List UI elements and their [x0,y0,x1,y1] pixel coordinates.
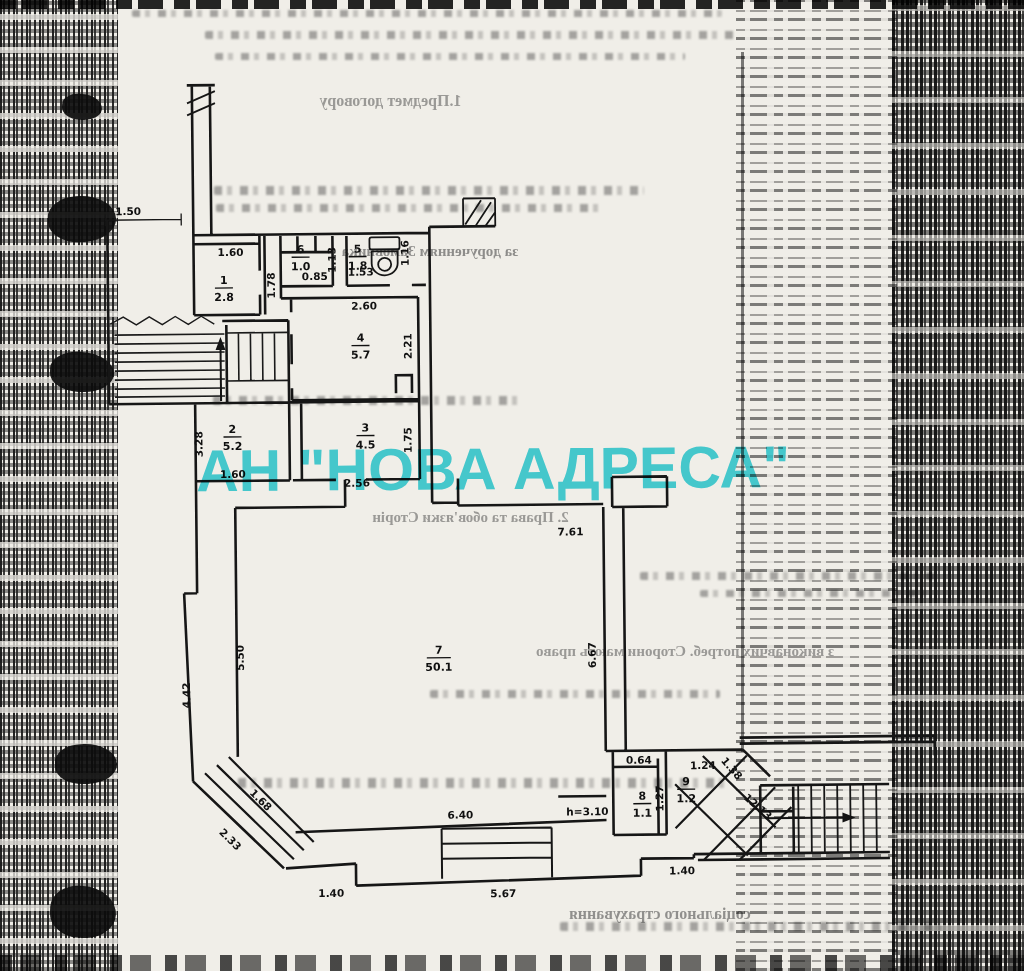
svg-text:6: 6 [297,243,305,256]
svg-text:1.2: 1.2 [676,792,696,805]
dim-label: 6.40 [447,808,473,820]
dim-label: 1.50 [115,205,141,217]
dim-label: h=3.10 [566,805,608,817]
svg-text:1.8: 1.8 [348,260,368,273]
dim-label: 2.21 [401,333,413,359]
svg-text:7: 7 [435,644,443,657]
svg-text:9: 9 [682,775,690,788]
dim-label: 1.40 [318,887,344,899]
dim-label: 1.78 [265,272,277,298]
dim-label: 1.40 [669,864,695,876]
dim-label: 1.13 [325,247,337,273]
entrance-steps [442,828,553,879]
agency-watermark: АН "НОВА АДРЕСА" [196,436,836,502]
dim-label: 2.60 [351,299,377,311]
room-label-4: 4 5.7 [351,331,371,361]
toilet-icon [369,237,399,275]
svg-text:4: 4 [357,332,365,345]
svg-text:8: 8 [638,790,646,803]
dim-label: 6.67 [586,642,598,668]
svg-text:2.8: 2.8 [214,291,234,304]
dim-label: 1.60 [218,246,244,258]
dim-label: 1.24 [690,759,716,771]
svg-text:2: 2 [229,423,237,436]
room-label-1: 1 2.8 [214,274,234,304]
dim-label: 7.61 [557,525,583,537]
dim-label: 5.67 [490,887,516,899]
svg-text:50.1: 50.1 [425,661,452,674]
dim-label: 5.50 [234,645,246,671]
room-label-5: 5 1.8 [348,243,368,273]
break-line [110,316,214,325]
stairs [114,332,289,397]
svg-text:1: 1 [220,274,228,287]
svg-text:1.1: 1.1 [633,807,653,820]
stairs-up-arrow-icon [215,337,226,401]
room-label-7: 7 50.1 [425,644,452,674]
dim-label: 1.16 [398,240,410,266]
room-label-9: 9 1.2 [676,775,696,805]
svg-text:5.7: 5.7 [351,348,371,361]
dim-label: 2.33 [217,826,244,853]
scanned-floor-plan-page: { "watermark": { "text": "АН \"НОВА АДРЕ… [0,0,1024,971]
room-label-8: 8 1.1 [632,790,652,820]
dim-label: 1.27 [653,785,665,811]
room-label-6: 6 1.0 [291,243,311,273]
svg-text:3: 3 [361,421,369,434]
dim-label: 4.42 [180,682,192,708]
svg-text:1.0: 1.0 [291,260,311,273]
dim-label: 0.64 [626,754,652,766]
dim-label: 1.38 [719,754,745,781]
svg-text:5: 5 [354,243,362,256]
right-arrow-icon [765,812,855,823]
wall-hatching [187,88,495,229]
